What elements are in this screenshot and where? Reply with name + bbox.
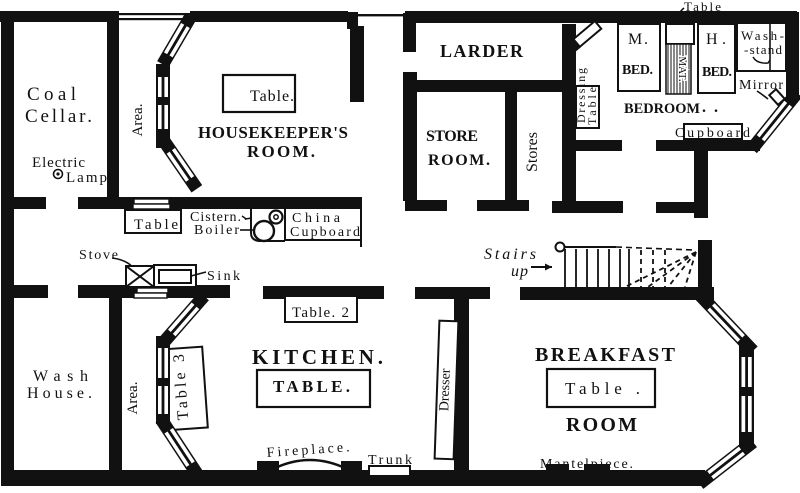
svg-text:BED.: BED. <box>622 63 655 78</box>
svg-text:House.: House. <box>27 385 92 402</box>
svg-text:M.: M. <box>628 31 648 48</box>
svg-text:Table.: Table. <box>250 88 294 105</box>
svg-text:Area.: Area. <box>130 104 146 137</box>
svg-text:TABLE.: TABLE. <box>273 377 352 396</box>
svg-text:up: up <box>511 263 528 280</box>
svg-text:STORE: STORE <box>426 128 480 145</box>
svg-text:H.: H. <box>706 31 726 48</box>
svg-text:Stores: Stores <box>524 132 541 172</box>
svg-text:-stand: -stand <box>744 42 783 57</box>
svg-text:ROOM.: ROOM. <box>247 142 317 161</box>
svg-text:Sink: Sink <box>207 269 240 284</box>
svg-text:BREAKFAST: BREAKFAST <box>535 344 677 366</box>
svg-text:MAT.: MAT. <box>676 56 688 81</box>
svg-text:. .: . . <box>702 99 720 116</box>
svg-text:LARDER: LARDER <box>440 41 525 61</box>
svg-text:KITCHEN.: KITCHEN. <box>252 345 385 369</box>
svg-text:Area.: Area. <box>125 382 141 415</box>
svg-text:Wash: Wash <box>33 368 88 385</box>
svg-text:ROOM: ROOM <box>566 414 639 436</box>
svg-text:Table: Table <box>684 0 721 14</box>
svg-text:BED.: BED. <box>702 65 734 80</box>
svg-text:Dresser: Dresser <box>437 368 453 412</box>
svg-text:Lamp: Lamp <box>66 170 107 186</box>
svg-text:China: China <box>292 211 341 226</box>
svg-text:BEDROOM: BEDROOM <box>624 101 700 117</box>
svg-text:Electric: Electric <box>32 155 85 171</box>
svg-text:Cupboard: Cupboard <box>675 126 750 141</box>
svg-text:ROOM.: ROOM. <box>428 152 492 169</box>
svg-text:HOUSEKEEPER'S: HOUSEKEEPER'S <box>198 123 350 142</box>
svg-text:Table: Table <box>585 87 599 125</box>
svg-text:Cupboard: Cupboard <box>290 225 360 240</box>
svg-text:Stove: Stove <box>79 248 118 263</box>
svg-text:Table: Table <box>134 217 178 233</box>
